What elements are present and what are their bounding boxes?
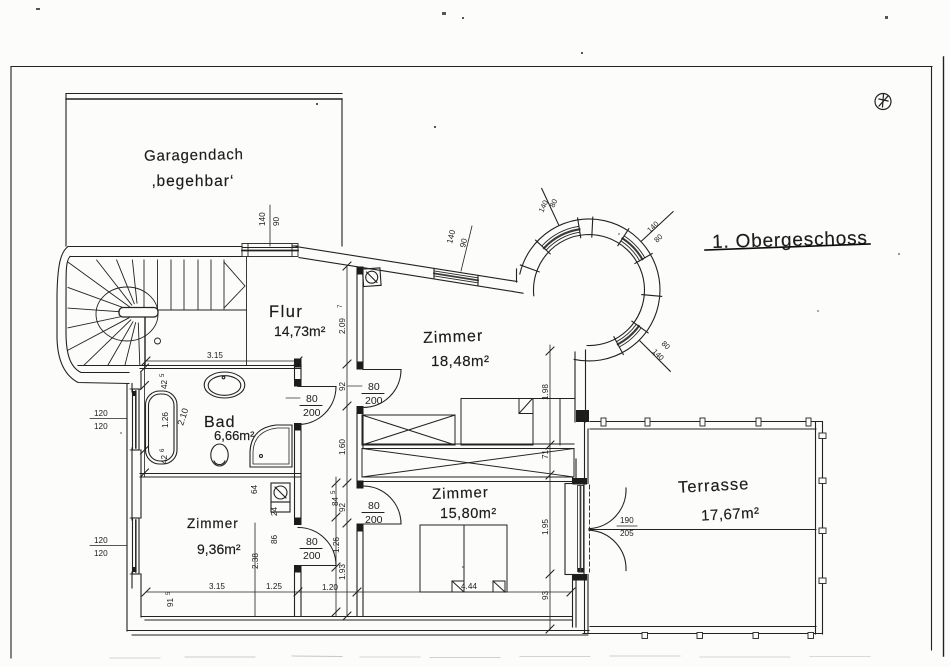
svg-text:120: 120 [94, 536, 108, 545]
svg-text:90: 90 [272, 216, 281, 226]
svg-text:71: 71 [541, 449, 550, 459]
svg-text:93: 93 [541, 590, 550, 600]
svg-text:90: 90 [458, 237, 469, 248]
svg-text:3.15: 3.15 [207, 351, 223, 360]
svg-text:80: 80 [660, 339, 672, 351]
svg-text:5: 5 [160, 373, 166, 377]
svg-text:Terrasse: Terrasse [678, 475, 750, 497]
svg-text:2.09: 2.09 [338, 318, 347, 334]
svg-text:80: 80 [306, 393, 318, 405]
svg-text:42: 42 [160, 454, 169, 464]
svg-text:‚begehbar‘: ‚begehbar‘ [152, 173, 234, 190]
svg-text:Flur: Flur [269, 303, 303, 321]
svg-text:200: 200 [365, 395, 383, 407]
svg-text:18,48m²: 18,48m² [431, 353, 490, 370]
svg-text:Zimmer: Zimmer [423, 328, 484, 347]
svg-text:91: 91 [166, 597, 175, 607]
svg-text:6: 6 [160, 448, 166, 452]
svg-text:64: 64 [250, 484, 259, 494]
svg-text:Garagendach: Garagendach [144, 146, 244, 165]
svg-text:2.38: 2.38 [251, 553, 260, 569]
svg-text:86: 86 [270, 534, 279, 544]
svg-text:3.15: 3.15 [209, 582, 225, 591]
svg-text:1.98: 1.98 [541, 384, 550, 400]
svg-text:140: 140 [445, 229, 457, 245]
svg-text:Zimmer: Zimmer [432, 484, 489, 503]
svg-text:9,36m²: 9,36m² [197, 541, 241, 557]
svg-text:1.26: 1.26 [161, 412, 170, 428]
svg-text:17,67m²: 17,67m² [701, 505, 760, 525]
svg-text:84: 84 [331, 496, 340, 506]
svg-text:200: 200 [303, 407, 321, 419]
svg-text:1.93: 1.93 [338, 564, 347, 580]
svg-text:24: 24 [270, 506, 279, 516]
svg-text:Zimmer: Zimmer [187, 516, 239, 531]
svg-text:120: 120 [94, 409, 108, 418]
svg-text:2.10: 2.10 [175, 407, 190, 427]
svg-text:15,80m²: 15,80m² [440, 506, 497, 522]
svg-text:1.60: 1.60 [338, 439, 347, 455]
svg-text:200: 200 [303, 550, 321, 562]
svg-text:190: 190 [620, 516, 634, 525]
svg-text:205: 205 [620, 529, 634, 538]
svg-text:80: 80 [368, 381, 380, 393]
svg-text:1.20: 1.20 [322, 583, 338, 592]
svg-text:42: 42 [160, 379, 169, 389]
svg-text:1.95: 1.95 [541, 519, 550, 535]
svg-text:1.26: 1.26 [332, 537, 341, 553]
svg-text:80: 80 [306, 536, 318, 548]
svg-text:14,73m²: 14,73m² [274, 323, 326, 339]
svg-text:4.44: 4.44 [461, 582, 477, 591]
svg-text:1.25: 1.25 [266, 582, 282, 591]
svg-text:200: 200 [365, 514, 383, 526]
svg-text:92: 92 [338, 381, 347, 391]
svg-text:6,66m²: 6,66m² [214, 428, 255, 443]
svg-text:120: 120 [94, 549, 108, 558]
svg-text:120: 120 [94, 422, 108, 431]
svg-text:140: 140 [258, 212, 267, 226]
svg-text:7: 7 [338, 304, 344, 308]
svg-text:80: 80 [548, 197, 560, 208]
svg-text:80: 80 [368, 500, 380, 512]
svg-text:80: 80 [652, 232, 664, 244]
